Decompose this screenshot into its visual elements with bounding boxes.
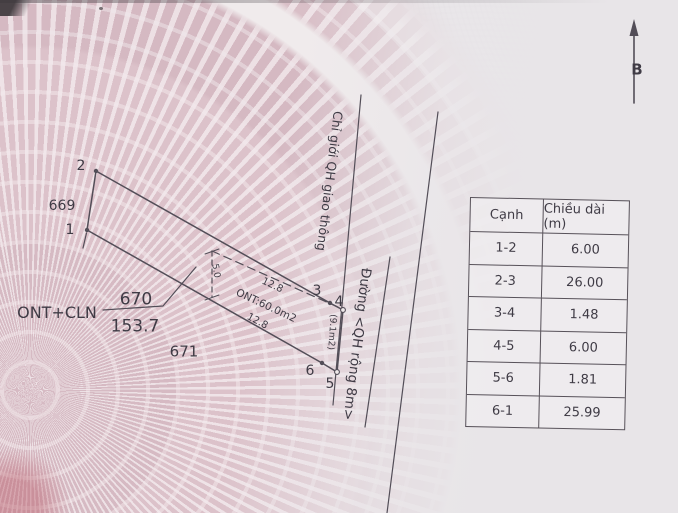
dimension-bottom-12-8: 12.8 — [245, 312, 269, 331]
strip-area-label: (9.1m2) — [325, 314, 336, 350]
table-row: 1-2 6.00 — [470, 231, 629, 267]
length-cell: 6.00 — [541, 331, 627, 364]
vertex-label-3: 3 — [313, 284, 322, 298]
vertex-label-2: 2 — [77, 159, 86, 173]
planning-boundary-label: Chỉ giới QH giao thông — [314, 110, 344, 251]
boundary-extension-below-1 — [83, 233, 87, 248]
vertex-label-1: 1 — [66, 223, 75, 237]
neighbor-parcel-671: 671 — [170, 345, 199, 360]
edge-cell: 4-5 — [468, 329, 542, 362]
edge-cell: 6-1 — [466, 394, 540, 427]
length-cell: 6.00 — [543, 234, 629, 267]
table-row: 6-1 25.99 — [466, 393, 625, 429]
ont-area-dashed-top — [212, 251, 340, 308]
edge-cell: 1-2 — [470, 232, 544, 265]
table-row: 3-4 1.48 — [468, 296, 627, 332]
vertex-label-4: 4 — [335, 295, 344, 309]
north-arrow-head — [630, 19, 639, 36]
north-arrow-label: B — [631, 63, 642, 78]
dim-tick-bottom — [205, 295, 219, 300]
length-cell: 1.81 — [540, 364, 626, 397]
paper-speck — [99, 7, 103, 10]
ont-area-label: ONT:60.0m2 — [234, 287, 298, 324]
vertex-dot-5 — [335, 370, 340, 375]
dimension-side-5-0: 5.0 — [209, 263, 220, 279]
vertex-dot-1 — [85, 228, 89, 232]
table-header-row: Cạnh Chiều dài (m) — [470, 198, 629, 234]
parcel-number: 670 — [120, 292, 152, 309]
vertex-dot-3 — [328, 301, 332, 305]
length-cell: 26.00 — [542, 266, 628, 299]
road-label: Đường <QH rộng 8m> — [340, 267, 372, 421]
vertex-dot-6 — [320, 361, 324, 365]
edge-length-table: Cạnh Chiều dài (m) 1-2 6.00 2-3 26.00 3-… — [465, 197, 630, 430]
vertex-label-5: 5 — [326, 377, 335, 391]
edge-cell: 2-3 — [469, 265, 543, 298]
land-certificate-photo: 2 1 3 4 6 5 669 671 670 153.7 ONT+CLN Ch… — [0, 0, 678, 513]
parcel-area: 153.7 — [111, 319, 160, 336]
dim-tick-top — [205, 249, 219, 254]
length-cell: 1.48 — [541, 299, 627, 332]
length-cell: 25.99 — [539, 396, 625, 429]
parcel-land-use: ONT+CLN — [17, 305, 97, 321]
neighbor-parcel-669: 669 — [49, 199, 76, 213]
vertex-dot-2 — [94, 169, 98, 173]
table-header-length: Chiều dài (m) — [543, 200, 629, 235]
table-row: 5-6 1.81 — [467, 361, 626, 397]
photo-top-shadow — [0, 0, 610, 3]
edge-cell: 3-4 — [468, 297, 542, 330]
table-row: 4-5 6.00 — [468, 328, 627, 364]
dimension-top-12-8: 12.8 — [260, 277, 284, 295]
table-header-edge: Cạnh — [470, 198, 544, 233]
edge-cell: 5-6 — [467, 362, 541, 395]
vertex-label-6: 6 — [306, 364, 315, 378]
table-row: 2-3 26.00 — [469, 264, 628, 300]
road-far-edge-line — [387, 112, 438, 513]
